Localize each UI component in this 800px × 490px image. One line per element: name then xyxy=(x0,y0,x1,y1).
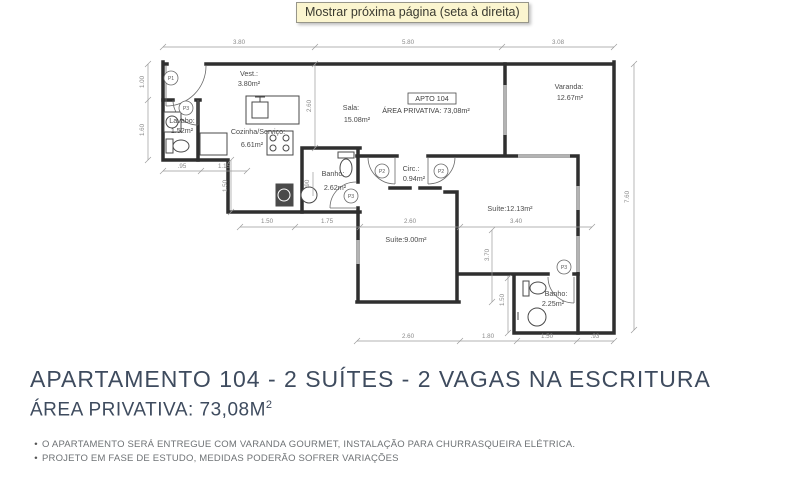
dim-mid-2: 1.75 xyxy=(321,218,334,225)
kitchen-sink xyxy=(252,102,268,118)
room-lavabo-area: 1.52m² xyxy=(171,126,194,135)
room-circ-name: Circ.: xyxy=(403,164,420,173)
room-vest-area: 3.80m² xyxy=(238,79,261,88)
lavabo-toilet-tank xyxy=(166,139,173,153)
room-vest-name: Vest.: xyxy=(240,69,258,78)
door-tag-p1: P1 xyxy=(168,76,174,82)
unit-tag: APTO 104 ÁREA PRIVATIVA: 73,08m² xyxy=(382,93,470,115)
dim-bottom-2: 1.80 xyxy=(482,333,495,340)
dim-mid-4: 3.40 xyxy=(510,218,523,225)
room-cozinha-name: Cozinha/Serviço: xyxy=(231,127,285,136)
room-suite2-label: Suíte:12.13m² xyxy=(487,204,533,213)
banho-social-toilet-tank xyxy=(338,152,354,158)
notes: •O APARTAMENTO SERÁ ENTREGUE COM VARANDA… xyxy=(30,438,575,466)
room-lavabo-name: Lavabo: xyxy=(169,116,195,125)
fridge xyxy=(200,133,227,155)
room-sala-name: Sala: xyxy=(343,103,359,112)
door-tag-p3-lavabo: P3 xyxy=(183,106,189,112)
dim-banho2-v: 1.50 xyxy=(499,293,506,306)
door-tag-p3-suite: P3 xyxy=(561,265,567,271)
dim-top-3: 3.08 xyxy=(552,39,565,46)
unit-area-text: ÁREA PRIVATIVA: 73,08m² xyxy=(382,106,470,115)
dim-right-v: 7.60 xyxy=(624,190,631,203)
dim-left-2: 1.60 xyxy=(139,123,146,136)
room-varanda-name: Varanda: xyxy=(555,82,584,91)
dim-bottom-1: 2.60 xyxy=(402,333,415,340)
dim-banho-v: .90 xyxy=(304,179,311,188)
dim-bottom-4: .93 xyxy=(591,333,600,340)
dim-top-2: 5.80 xyxy=(402,39,415,46)
note-line: •O APARTAMENTO SERÁ ENTREGUE COM VARANDA… xyxy=(30,438,575,452)
apartment-title: APARTAMENTO 104 - 2 SUÍTES - 2 VAGAS NA … xyxy=(30,366,711,393)
dim-left-1: 1.00 xyxy=(139,75,146,88)
bullet-icon: • xyxy=(30,452,42,466)
floor-plan: 3.80 5.80 3.08 1.00 1.60 .95 1.15 2.60 1… xyxy=(135,30,650,360)
room-varanda-area: 12.67m² xyxy=(557,93,584,102)
bullet-icon: • xyxy=(30,438,42,452)
stove-burner xyxy=(270,145,276,151)
banho-social-sink xyxy=(301,187,317,203)
tooltip: Mostrar próxima página (seta à direita) xyxy=(296,2,529,23)
room-banho-social-area: 2.62m² xyxy=(324,183,347,192)
lavabo-toilet-bowl xyxy=(173,140,189,152)
room-banho-suite-area: 2.25m² xyxy=(542,299,565,308)
note-text: PROJETO EM FASE DE ESTUDO, MEDIDAS PODER… xyxy=(42,453,399,464)
stove-burner xyxy=(283,145,289,151)
dim-lavabo-2: 1.15 xyxy=(218,163,231,170)
dim-sala-v: 2.60 xyxy=(306,99,313,112)
banho-suite-toilet-bowl xyxy=(530,282,546,294)
banho-suite-sink xyxy=(528,308,546,326)
dim-mid-1: 1.50 xyxy=(261,218,274,225)
dim-kitchen-v: 1.50 xyxy=(222,179,229,192)
dim-suite-v: 3.70 xyxy=(484,248,491,261)
unit-tag-text: APTO 104 xyxy=(415,94,448,103)
room-sala-area: 15.08m² xyxy=(344,115,371,124)
private-area-subtitle: ÁREA PRIVATIVA: 73,08M2 xyxy=(30,399,273,421)
room-circ-area: 0.94m² xyxy=(403,174,426,183)
banho-suite-toilet-tank xyxy=(523,281,529,296)
door-tag-p2-left: P2 xyxy=(379,169,385,175)
room-labels: Vest.: 3.80m² Lavabo: 1.52m² Cozinha/Ser… xyxy=(169,69,584,308)
door-tags: P1 P3 P2 P2 P3 P3 xyxy=(164,71,571,274)
dim-top-1: 3.80 xyxy=(233,39,246,46)
room-cozinha-area: 6.61m² xyxy=(241,140,264,149)
room-suite1-label: Suíte:9.00m² xyxy=(385,235,427,244)
room-banho-social-name: Banho: xyxy=(322,169,345,178)
private-area-sup: 2 xyxy=(266,399,273,411)
dim-mid-3: 2.60 xyxy=(404,218,417,225)
note-text: O APARTAMENTO SERÁ ENTREGUE COM VARANDA … xyxy=(42,439,575,450)
screen: Mostrar próxima página (seta à direita) xyxy=(0,0,800,490)
note-line: •PROJETO EM FASE DE ESTUDO, MEDIDAS PODE… xyxy=(30,452,575,466)
dim-bottom-3: 1.50 xyxy=(541,333,554,340)
dim-lavabo-1: .95 xyxy=(178,163,187,170)
room-banho-suite-name: Banho: xyxy=(545,289,568,298)
door-tag-p2-right: P2 xyxy=(438,169,444,175)
door-tag-p3-banho: P3 xyxy=(348,194,354,200)
tooltip-text: Mostrar próxima página (seta à direita) xyxy=(305,5,520,19)
private-area-text: ÁREA PRIVATIVA: 73,08M xyxy=(30,399,266,420)
